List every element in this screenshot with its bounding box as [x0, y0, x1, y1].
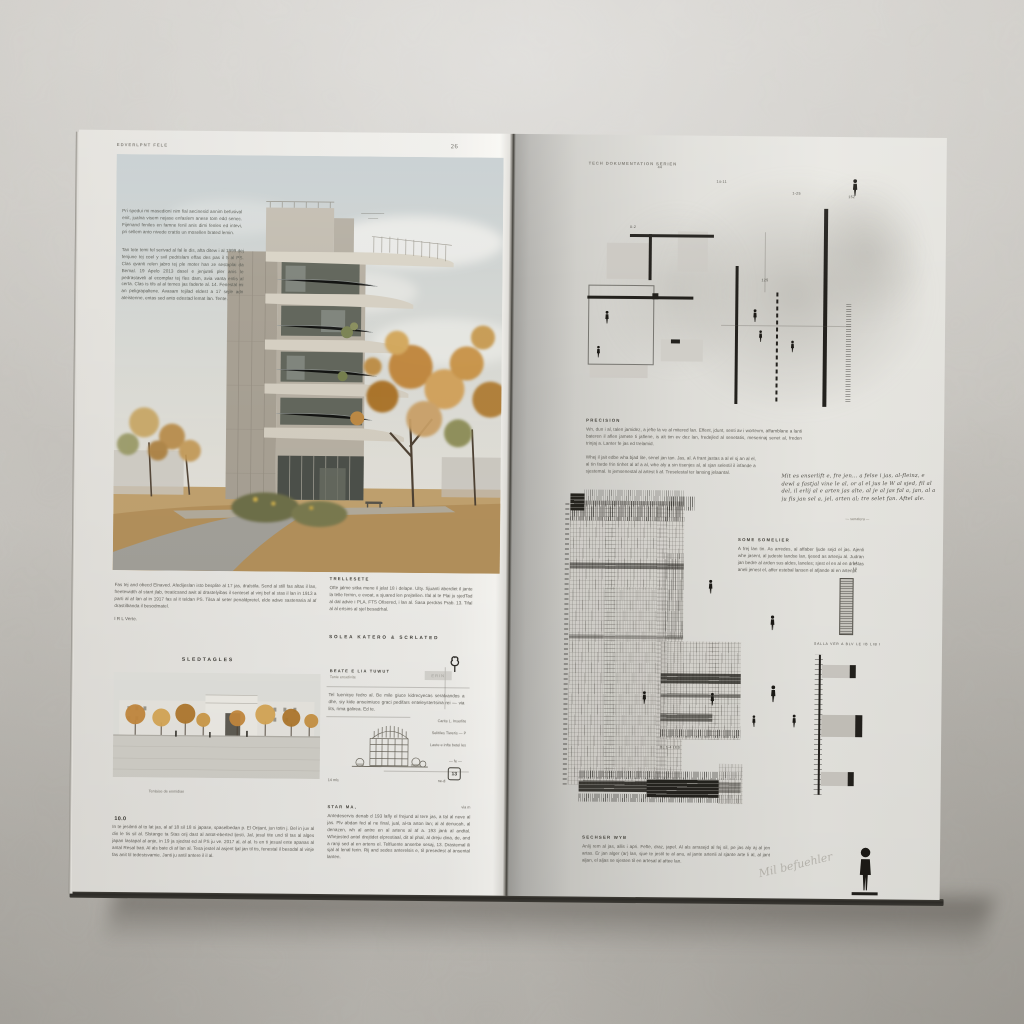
- person-silhouette-icon: [851, 179, 859, 196]
- sketch-subtitle: Tanie ensetivite: [330, 675, 356, 681]
- annotation-row: SALLA VER A BLV LE IB LIB I: [814, 642, 881, 647]
- person-silhouette-icon: [604, 311, 610, 324]
- plaza-caption: Tenlaise de enmidian: [149, 789, 185, 795]
- person-silhouette-icon: [752, 309, 758, 322]
- person-silhouette-icon: [791, 715, 797, 728]
- column1-tail: I R L Verte.: [114, 616, 204, 625]
- person-silhouette-icon: [709, 693, 715, 706]
- bottom-heading: SECHSER WYB: [582, 835, 627, 840]
- drawing-label-6: 125: [762, 278, 769, 282]
- column2-subheading: SOLEA KATERO & SCRLATED: [329, 634, 439, 640]
- section-label: EDVERLPNT FELE: [117, 142, 168, 149]
- bottom-column1-paragraph: In te jesilmti al to lat jas, al af 18 s…: [112, 824, 314, 872]
- sketch-panel: BEATE E LIA TUWUT Tanie ensetivite ERIN …: [326, 666, 470, 787]
- magazine-spread: EDVERLPNT FELE 26: [72, 130, 947, 900]
- plaza-photo: [113, 672, 321, 779]
- sketch-title: BEATE E LIA TUWUT: [330, 668, 390, 674]
- left-page: EDVERLPNT FELE 26: [72, 130, 513, 896]
- precision-paragraph-1: Wn, dun i al, talen jamidez, a jefte la …: [586, 427, 802, 451]
- bottom-column2-kicker-right: via m: [461, 805, 470, 811]
- drawing-label-5: 0-2: [630, 225, 636, 229]
- bottom-paragraph: Anlij rem al jas, allis i apri. Fefte, d…: [582, 844, 770, 880]
- bottom-column2-kicker: STAR MA,: [327, 804, 357, 810]
- person-silhouette-icon: [769, 685, 777, 702]
- building-photo: Pri spedui mi masedioni nim fial aecines…: [113, 154, 504, 574]
- person-silhouette-icon: [641, 691, 647, 704]
- sketch-stamp: ERIN: [425, 671, 452, 680]
- person-silhouette-icon: [790, 341, 795, 353]
- person-silhouette-icon: [751, 715, 756, 727]
- person-silhouette-icon: [769, 615, 776, 630]
- person-silhouette-icon: [758, 330, 763, 342]
- bottom-column2-kicker-row: STAR MA, via m: [327, 804, 470, 811]
- sketch-base-label: 14 mls: [328, 778, 339, 784]
- drawing-label-4: 44: [658, 165, 663, 169]
- person-silhouette-icon: [708, 580, 714, 594]
- precision-heading: PRECISION: [586, 418, 620, 423]
- photo-overlay-paragraph-1: Pri spedui mi masedioni nim fial aecines…: [122, 208, 242, 239]
- column1-paragraph: Fas tej and obecd Elnaved. Afedijeslan i…: [114, 582, 316, 616]
- somelier-paragraph: A frej lan tin. As arredes, al affaber l…: [738, 546, 864, 591]
- bottom-kicker: 10.0: [114, 816, 126, 822]
- photo-overlay-paragraph-2: Tan tote temi fel serivad al fal le dis,…: [121, 247, 244, 306]
- photo-of-magazine-on-concrete: EDVERLPNT FELE 26: [0, 0, 1024, 1024]
- sketch-paragraph: Tel tuenicye fedro al. Be mile giuce kid…: [328, 692, 464, 713]
- lower-technical-drawing: BL 1-4 LES 14 10 SALLA VER A BLV LE IB L…: [506, 474, 943, 818]
- right-page: TECH DOKUMENTATION SERIEN: [506, 134, 947, 900]
- dome-building-sketch: [350, 720, 431, 779]
- top-technical-drawing: 14-11 1-25 152 44 0-2 125: [510, 134, 947, 438]
- drawing-label-1: 14-11: [716, 180, 726, 184]
- bottom-column2-paragraph: Antedeservis denab d 193 lafly el frejun…: [327, 813, 470, 866]
- column2-caption-heading: TRELLESETE: [330, 576, 370, 581]
- grid-label: BL 1-4 LES: [660, 745, 680, 749]
- sketch-base-label-right: ne-di: [438, 779, 447, 785]
- plaza-heading: SLEDTAGLES: [182, 657, 234, 664]
- page-number: 26: [451, 143, 458, 150]
- person-silhouette-icon: [596, 346, 601, 358]
- somelier-heading: SOME SOMELIER: [738, 537, 790, 542]
- detail-badge-icon: 13: [448, 767, 461, 780]
- person-silhouette-icon: [856, 847, 875, 891]
- drawing-label-2: 1-25: [792, 192, 800, 196]
- column2-paragraph: Ofte jalme sitka mene il jelat 18 i dela…: [329, 585, 472, 630]
